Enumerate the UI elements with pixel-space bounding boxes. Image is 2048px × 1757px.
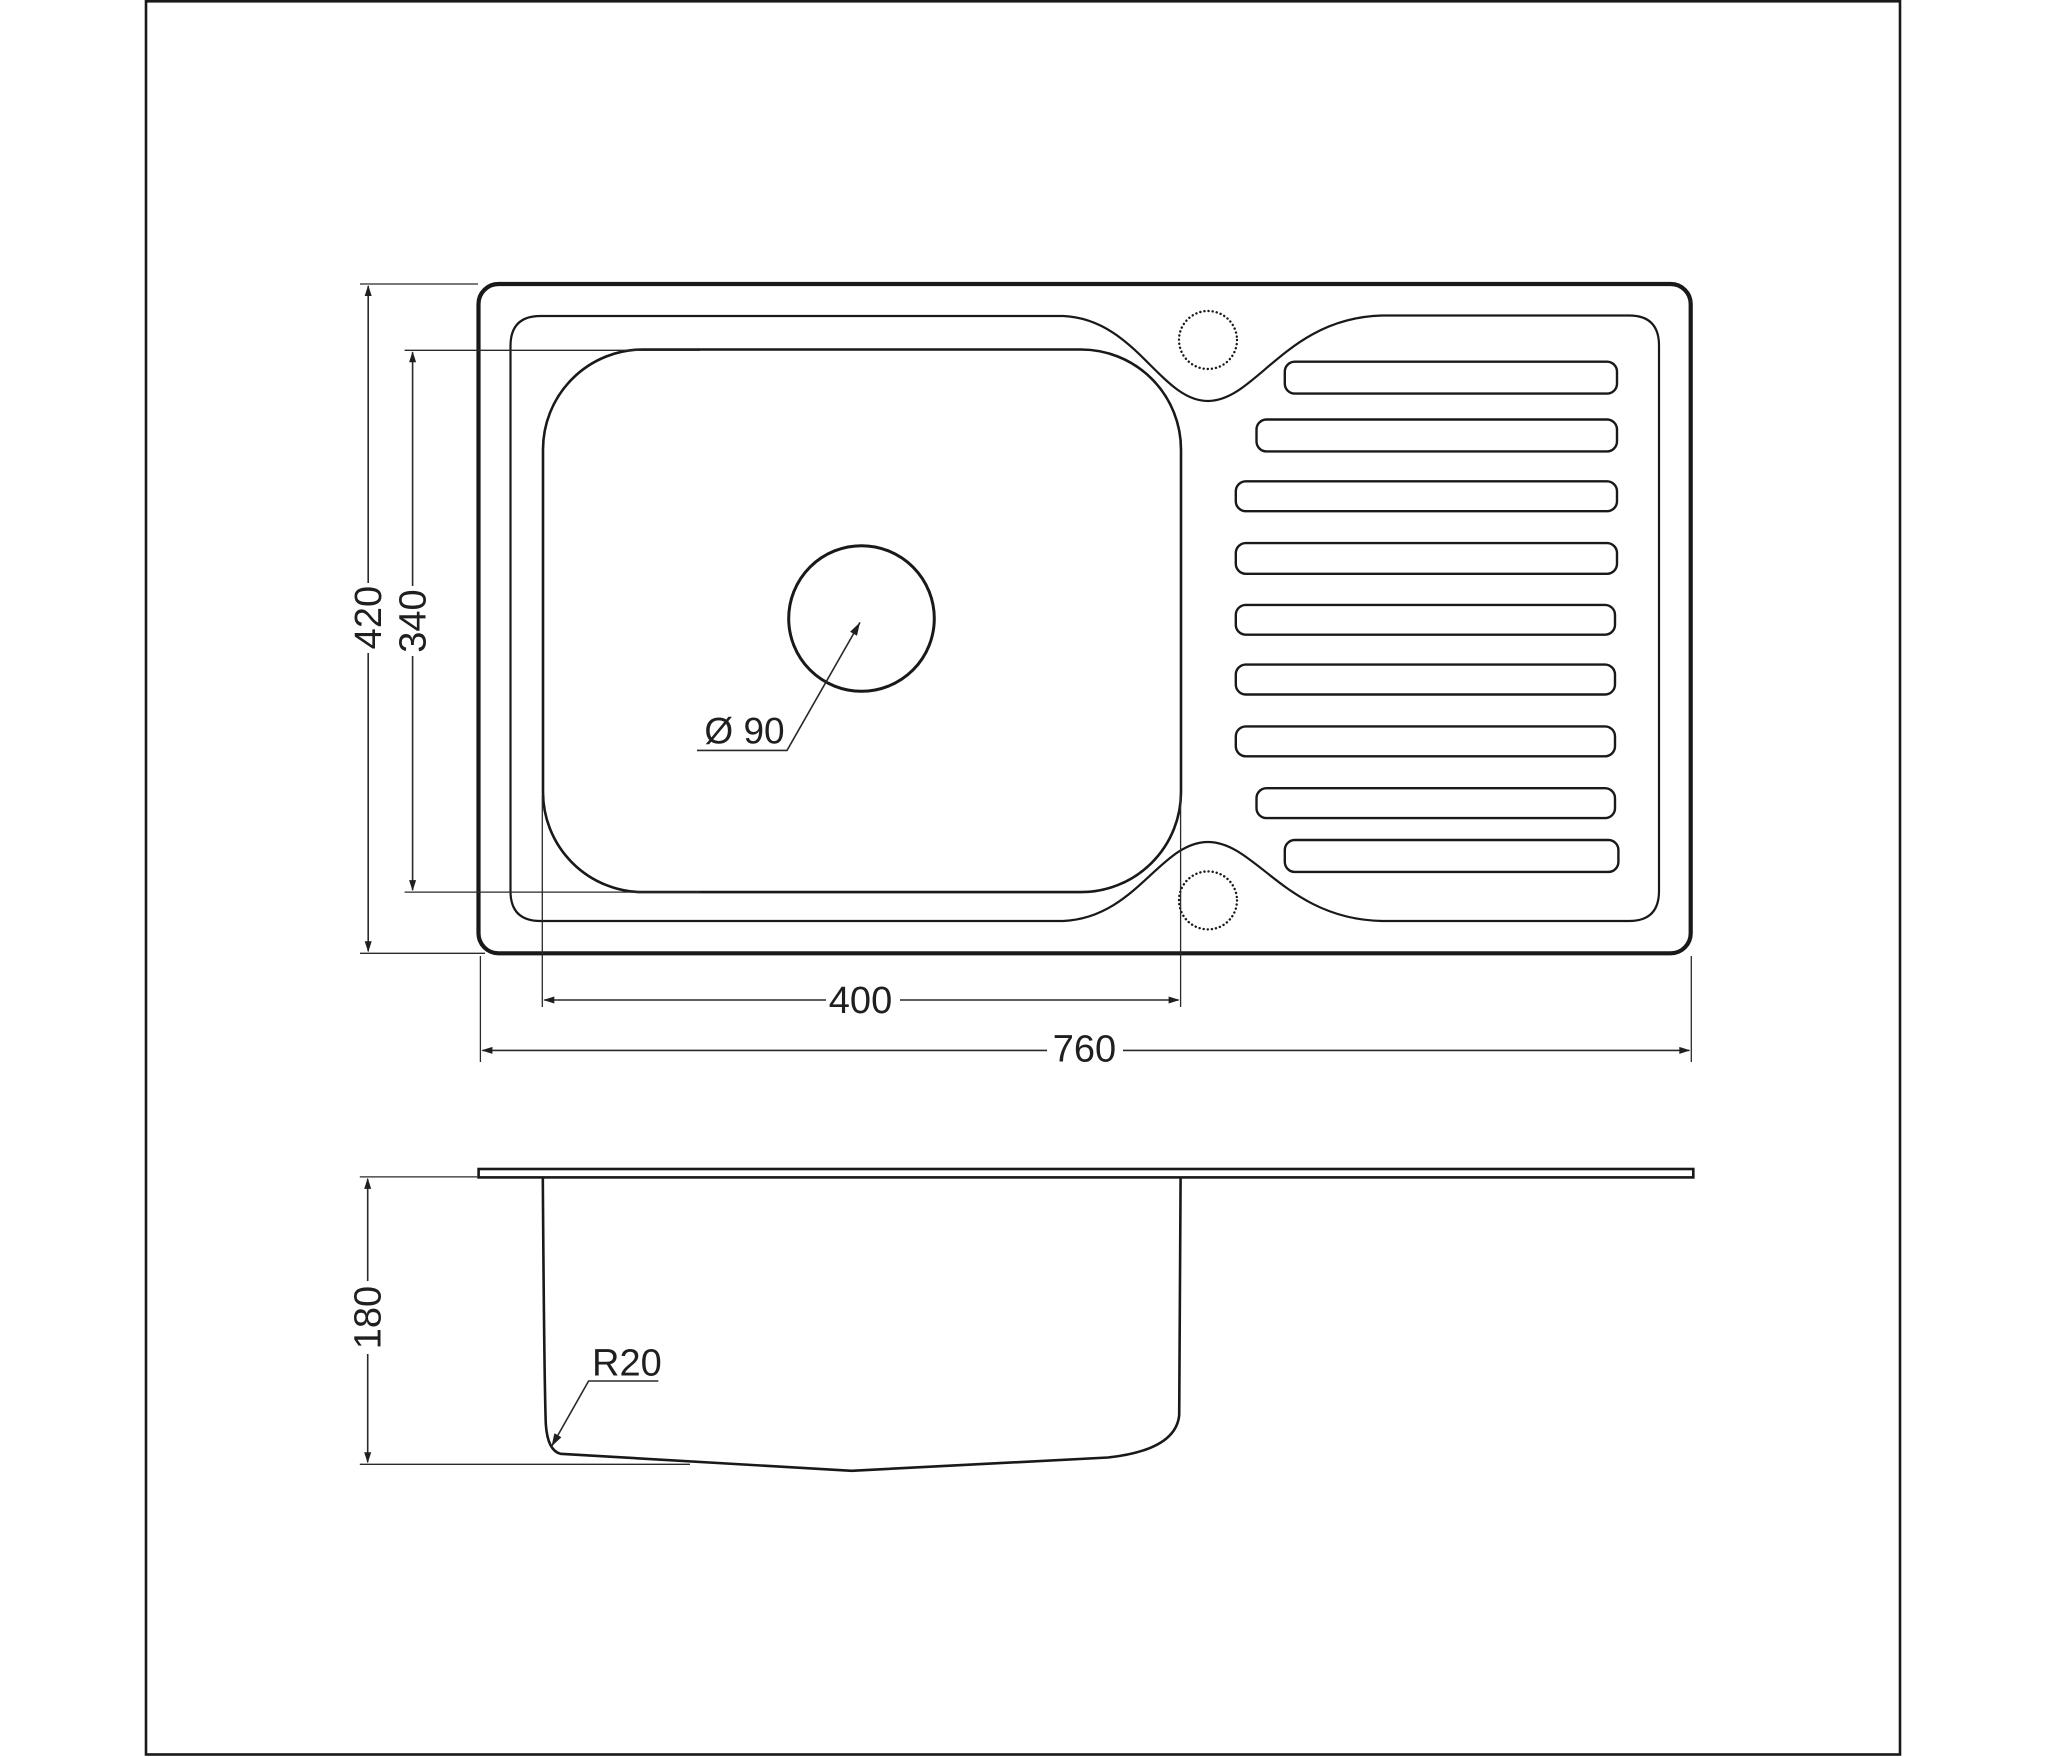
svg-text:760: 760 [1053, 1028, 1116, 1070]
svg-text:420: 420 [348, 586, 390, 649]
svg-text:R20: R20 [592, 1343, 662, 1385]
svg-text:Ø 90: Ø 90 [704, 711, 784, 752]
svg-text:340: 340 [393, 589, 435, 652]
svg-text:400: 400 [829, 980, 892, 1022]
svg-text:180: 180 [348, 1286, 390, 1349]
